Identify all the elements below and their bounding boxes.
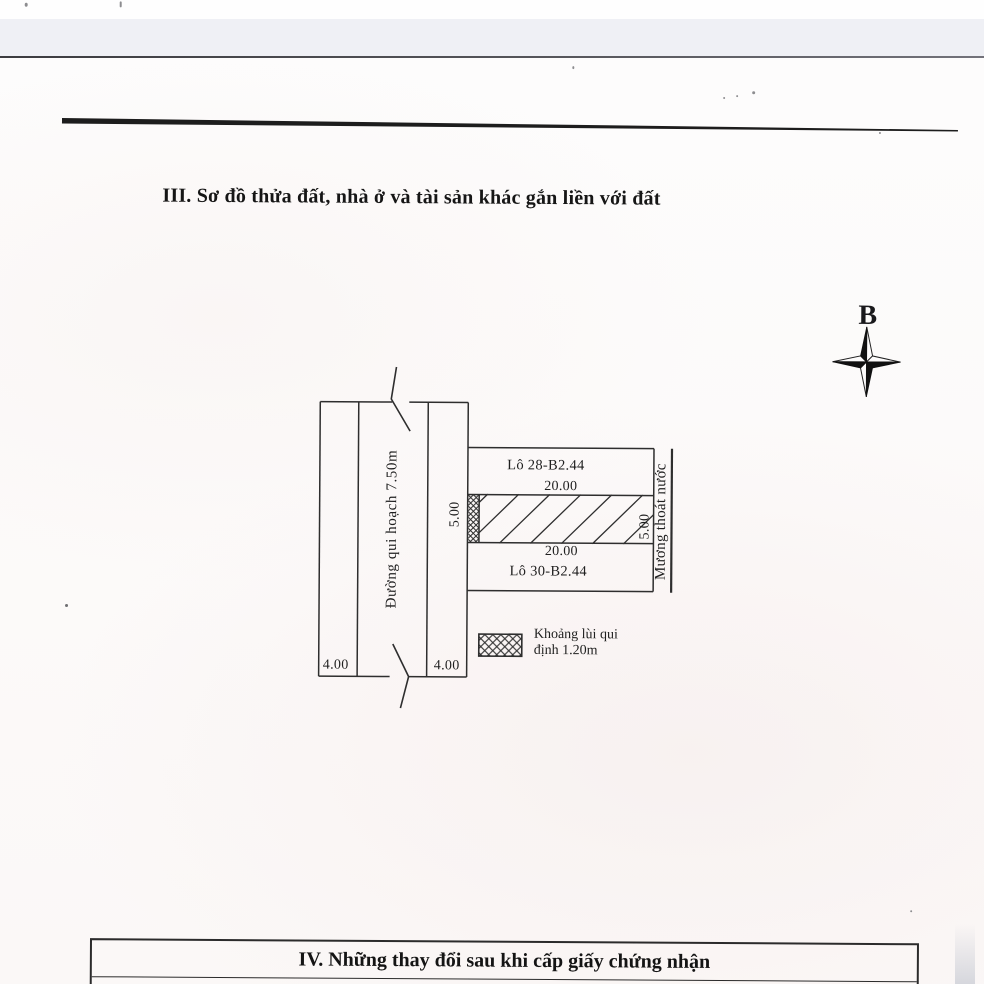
section-iv-table: IV. Những thay đổi sau khi cấp giấy chứn… xyxy=(90,938,919,984)
scan-speck xyxy=(736,95,738,97)
section-iii-title: III. Sơ đồ thửa đất, nhà ở và tài sản kh… xyxy=(91,184,731,211)
section-iv-title: IV. Những thay đổi sau khi cấp giấy chứn… xyxy=(299,948,711,974)
lot-lower-length-dimension: 20.00 xyxy=(545,544,578,560)
drainage-label: Mương thoát nước xyxy=(653,463,671,580)
road-lane-right-dimension: 4.00 xyxy=(434,658,460,674)
scan-speck xyxy=(25,3,28,7)
legend-label-line2: định 1.20m xyxy=(534,642,618,658)
drainage-line xyxy=(671,449,672,593)
scan-line xyxy=(62,118,958,131)
scan-speck xyxy=(65,604,68,607)
lot-depth-dimension: 5.00 xyxy=(637,514,653,540)
diagram-artwork xyxy=(0,0,984,984)
lot-upper-length-dimension: 20.00 xyxy=(544,479,577,495)
setback-hatch xyxy=(468,495,479,542)
road-name-label: Đường qui hoạch 7.50m xyxy=(384,450,402,609)
compass-north-label: B xyxy=(853,300,883,332)
scan-speck xyxy=(910,910,912,912)
scanned-page: III. Sơ đồ thửa đất, nhà ở và tài sản kh… xyxy=(0,0,984,984)
road-lane-left-dimension: 4.00 xyxy=(323,658,349,674)
legend-swatch xyxy=(479,634,522,656)
legend-label: Khoảng lùi qui định 1.20m xyxy=(534,627,618,659)
lot-lower-name: Lô 30-B2.44 xyxy=(509,563,587,580)
legend-label-line1: Khoảng lùi qui xyxy=(534,627,618,643)
scan-speck xyxy=(120,1,122,7)
scan-speck xyxy=(572,66,574,69)
page-edge-shadow xyxy=(955,924,975,984)
section-iv-header: IV. Những thay đổi sau khi cấp giấy chứn… xyxy=(92,940,917,982)
road-break-top-icon xyxy=(391,367,410,431)
scan-speck xyxy=(879,132,881,134)
frontage-dimension: 5.00 xyxy=(448,502,464,528)
page-content: III. Sơ đồ thửa đất, nhà ở và tài sản kh… xyxy=(0,0,984,984)
compass-rose-icon xyxy=(832,327,900,397)
scan-speck xyxy=(752,91,755,94)
scan-speck xyxy=(723,97,725,99)
lot-upper-name: Lô 28-B2.44 xyxy=(507,457,585,474)
road-break-bottom-icon xyxy=(392,644,408,708)
